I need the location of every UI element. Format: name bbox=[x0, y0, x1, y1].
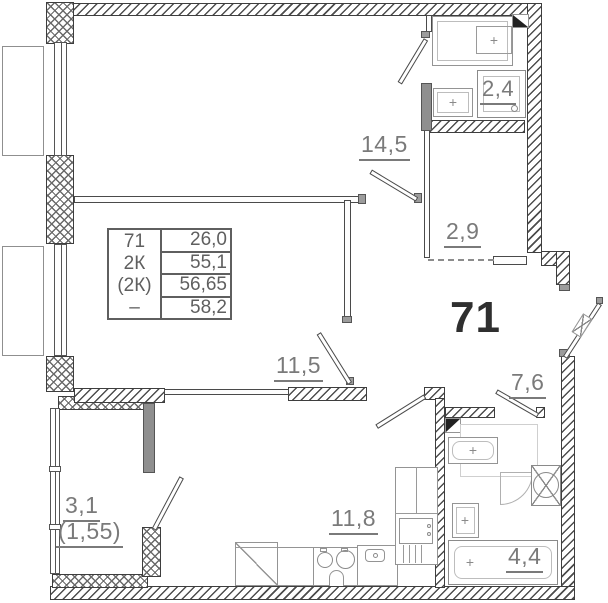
area-label-bedroom: 14,5 bbox=[359, 131, 410, 161]
apartment-info-table: 71 2К (2К) – 26,0 55,1 56,65 58,2 bbox=[107, 228, 232, 320]
kitchen-sink-drain bbox=[373, 553, 378, 558]
door-kitchen bbox=[375, 394, 426, 428]
vent-corner-bottom bbox=[445, 418, 461, 433]
partition-living-bottom bbox=[164, 389, 289, 395]
ac-basket-top bbox=[2, 46, 44, 156]
wall-top bbox=[63, 3, 540, 16]
fridge-top-line bbox=[236, 547, 277, 548]
wall-bottom bbox=[50, 586, 575, 600]
cabinet-door-arc bbox=[500, 472, 533, 505]
wall-left-pier-low bbox=[46, 356, 74, 392]
oven-door bbox=[329, 570, 344, 586]
kitchen-counter bbox=[277, 547, 314, 586]
cabinet-grill-line bbox=[415, 545, 416, 563]
cap-partition-end bbox=[358, 194, 366, 204]
wall-jog-stub bbox=[556, 251, 570, 285]
area-label-hallway: 7,6 bbox=[509, 369, 546, 399]
cap-bath-top-hinge bbox=[421, 31, 430, 38]
vent-corner-top bbox=[512, 14, 529, 28]
cabinet-divider-v bbox=[416, 467, 417, 513]
area-value: 11,8 bbox=[329, 505, 378, 535]
cabinet-grill-line bbox=[403, 545, 404, 563]
ac-basket-bottom bbox=[2, 246, 44, 356]
apartment-number: 71 bbox=[450, 293, 501, 343]
wall-living-bottom-left bbox=[74, 388, 165, 403]
fixture-cross-icon: + bbox=[466, 555, 474, 569]
window-bedroom bbox=[54, 42, 67, 156]
window-glass-line bbox=[55, 409, 56, 573]
fixture-cross-icon: + bbox=[449, 95, 457, 109]
fixture-cross-icon: + bbox=[490, 33, 498, 47]
wall-living-bottom-right bbox=[288, 387, 367, 401]
fixture-cross-icon: + bbox=[469, 443, 477, 457]
partition-bedroom bbox=[74, 196, 364, 203]
apartment-type-cell: 2К bbox=[124, 254, 146, 273]
vent-corner-fill bbox=[446, 419, 460, 432]
area-label-living: 11,5 bbox=[274, 352, 323, 382]
area-label-balcony-reduced: (1,55) bbox=[56, 518, 123, 548]
dash-cell: – bbox=[129, 298, 140, 317]
area-value: 14,5 bbox=[359, 131, 410, 161]
door-bedroom bbox=[369, 170, 418, 202]
entrance-door-mark bbox=[572, 313, 593, 337]
stove-burner bbox=[317, 552, 333, 568]
washing-machine-drum bbox=[533, 472, 559, 498]
wall-right-upper bbox=[527, 3, 542, 253]
floor-area-cell: 55,1 bbox=[162, 253, 230, 276]
reduced-area-cell: 56,65 bbox=[162, 275, 230, 298]
stove-knob bbox=[320, 548, 327, 552]
area-label-bath-bottom: 4,4 bbox=[506, 543, 543, 573]
stove-knob bbox=[341, 548, 348, 552]
area-value: 7,6 bbox=[509, 369, 546, 399]
area-label-kitchen: 11,8 bbox=[329, 505, 378, 535]
wall-balcony-hinge-block bbox=[142, 527, 161, 577]
area-label-storage: 2,9 bbox=[444, 218, 481, 248]
wall-balcony-bottom bbox=[52, 574, 148, 588]
balcony-window-bar bbox=[143, 403, 155, 473]
area-value: 2,4 bbox=[480, 76, 516, 105]
fridge bbox=[235, 542, 278, 586]
floor-plan: + + + + + 71 2К (2К) – bbox=[0, 0, 608, 603]
area-value: 2,9 bbox=[444, 218, 481, 248]
cabinet-mid-box bbox=[399, 518, 433, 544]
cap-living-vert-end bbox=[342, 316, 352, 323]
wall-left-pier-mid bbox=[46, 155, 74, 244]
partition-storage-left bbox=[424, 128, 430, 258]
wall-right-lower bbox=[561, 356, 575, 600]
balcony-glazing-divider bbox=[49, 466, 61, 472]
apartment-no-cell: 71 bbox=[124, 232, 145, 251]
vent-corner-fill bbox=[513, 15, 528, 27]
cabinet-grill-line bbox=[409, 545, 410, 563]
wall-bath-top-bottom bbox=[424, 120, 525, 133]
door-bath-top bbox=[398, 38, 429, 84]
cabinet-grill-line bbox=[421, 545, 422, 563]
balcony-glazing bbox=[50, 408, 60, 574]
wall-left-corner bbox=[46, 2, 74, 44]
apartment-type-alt-cell: (2К) bbox=[117, 276, 151, 295]
cabinet-divider-h bbox=[395, 513, 438, 514]
area-value: (1,55) bbox=[56, 518, 123, 548]
info-table-left-column: 71 2К (2К) – bbox=[109, 230, 162, 318]
stove-burner bbox=[336, 550, 355, 569]
door-balcony bbox=[152, 476, 184, 530]
total-area-cell: 58,2 bbox=[162, 298, 230, 319]
living-area-cell: 26,0 bbox=[162, 230, 230, 253]
partition-living-vert bbox=[344, 200, 351, 322]
duct-bath-top bbox=[421, 83, 432, 131]
storage-threshold bbox=[493, 256, 527, 265]
shower-drain bbox=[511, 105, 518, 112]
wall-bath-bottom-top bbox=[445, 407, 495, 418]
window-living bbox=[54, 244, 67, 356]
storage-open-edge bbox=[428, 259, 494, 261]
area-value: 4,4 bbox=[506, 543, 543, 573]
cabinet-knob bbox=[427, 532, 431, 536]
area-value: 11,5 bbox=[274, 352, 323, 382]
info-table-right-column: 26,0 55,1 56,65 58,2 bbox=[162, 230, 230, 318]
window-glass-line bbox=[61, 43, 62, 155]
window-glass-line bbox=[61, 245, 62, 355]
fixture-cross-icon: + bbox=[461, 513, 469, 527]
cap-entrance-jamb-top bbox=[559, 284, 570, 291]
cabinet-knob bbox=[427, 524, 431, 528]
area-label-bath-top: 2,4 bbox=[480, 76, 516, 105]
